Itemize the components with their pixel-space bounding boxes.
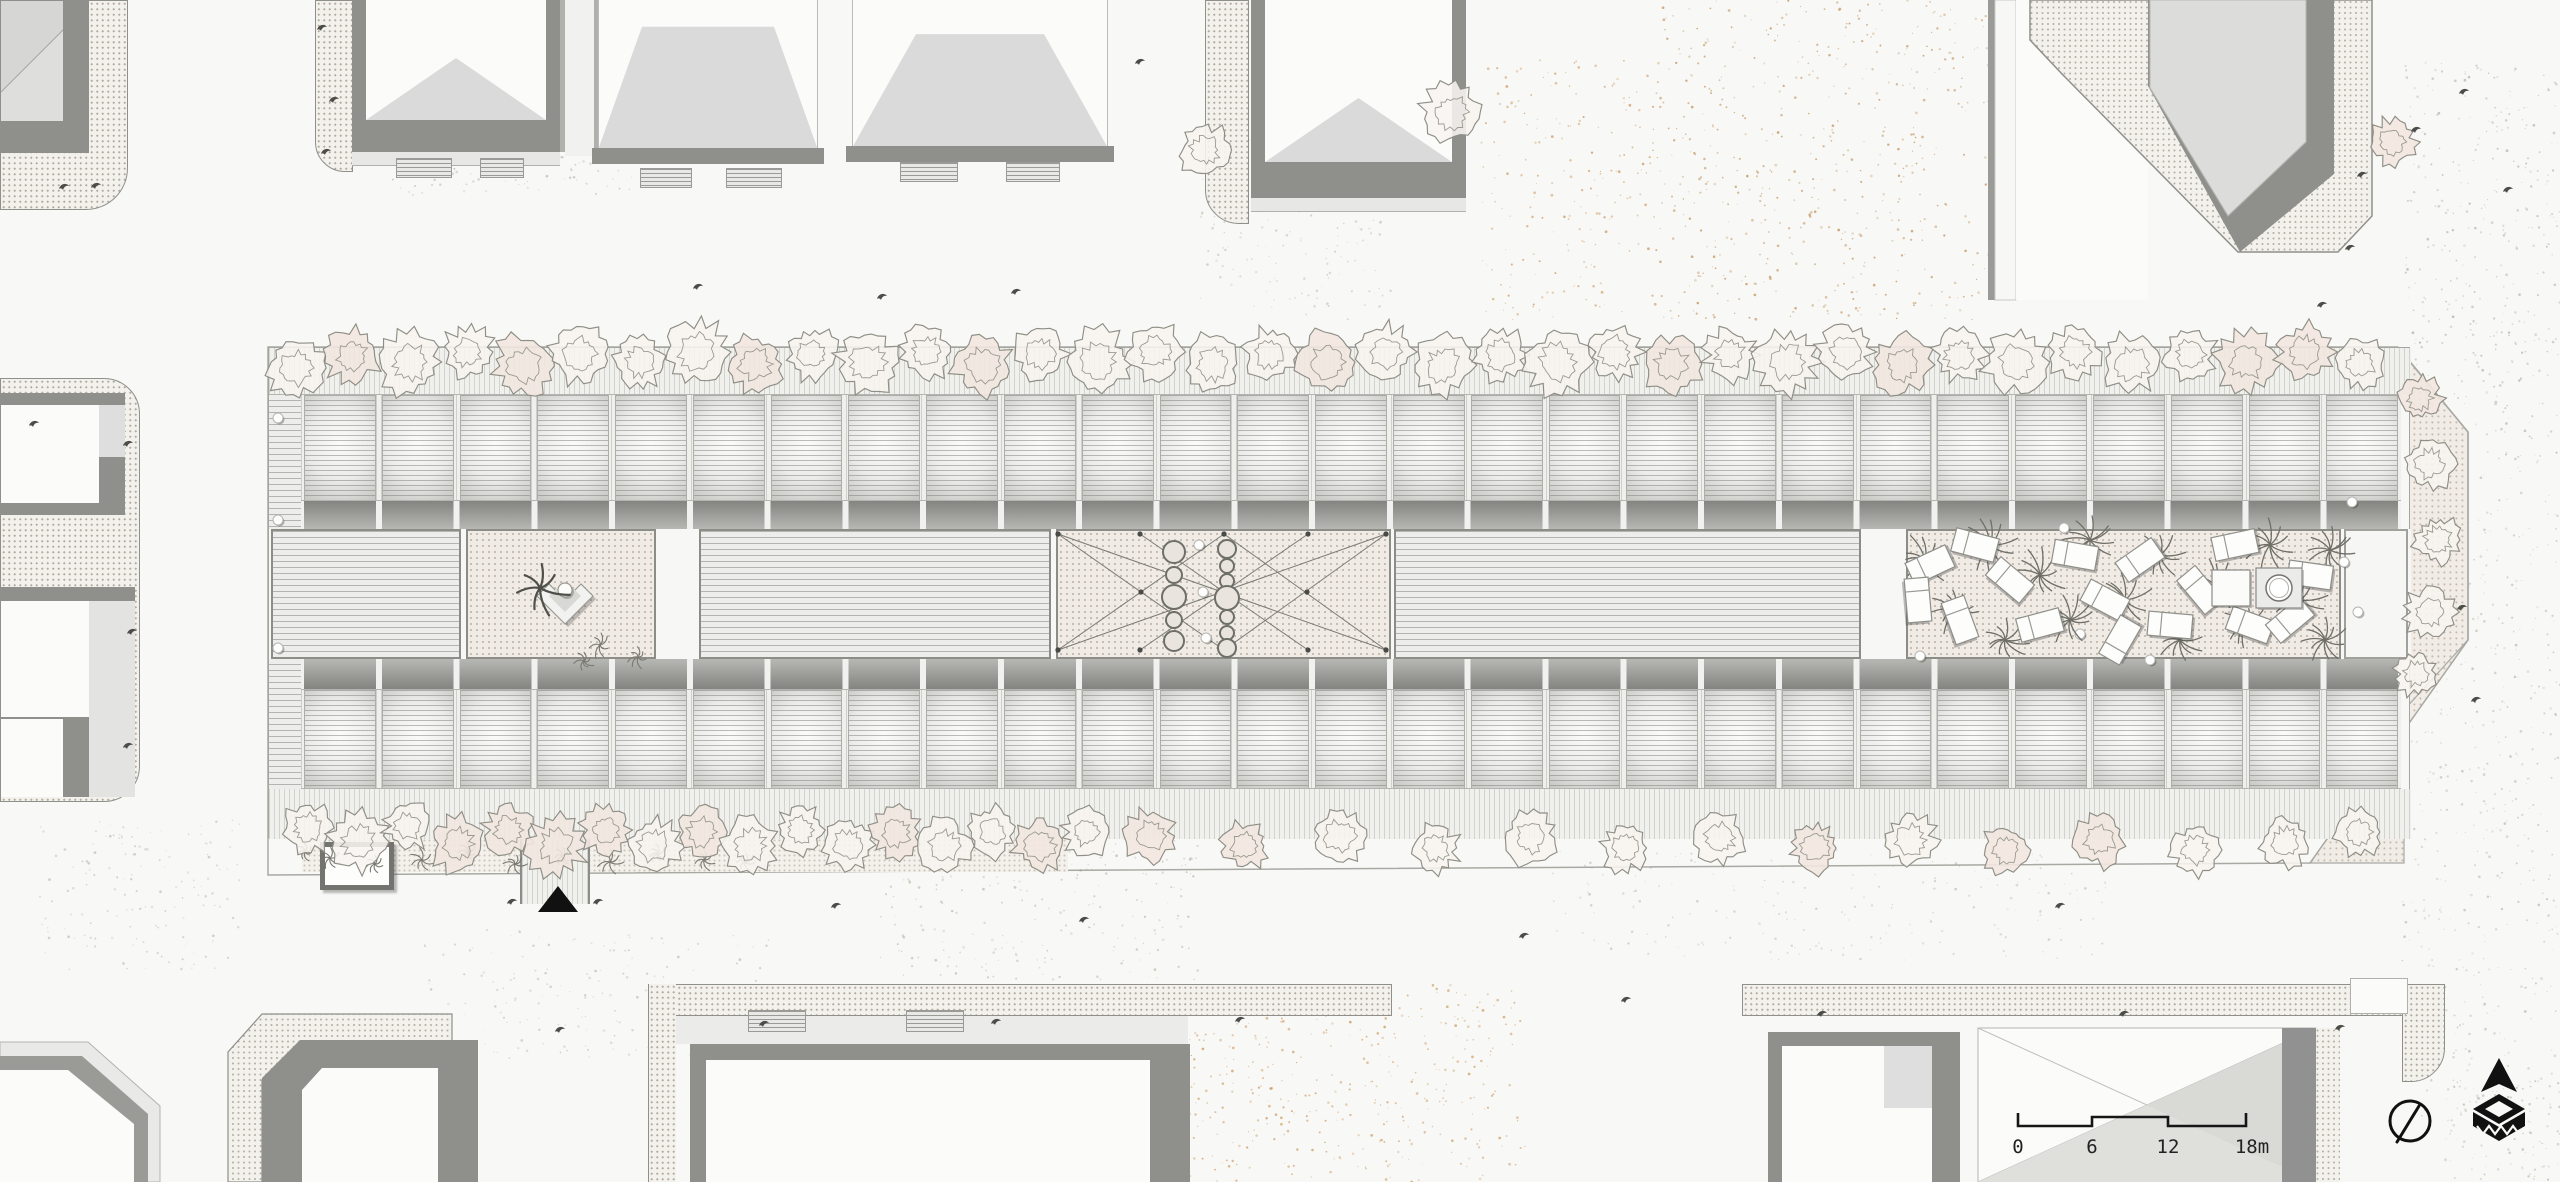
bird-icon — [1621, 997, 1631, 1003]
vault-module — [2015, 395, 2087, 500]
context-building-nw — [0, 0, 128, 210]
vault-module — [1315, 690, 1387, 788]
vault-module — [1471, 395, 1543, 500]
bird-icon — [2503, 187, 2513, 193]
site-plan-canvas: 0 6 12 18m — [0, 0, 2560, 1182]
roof-strip — [89, 601, 135, 797]
bird-icon — [2317, 302, 2327, 308]
vault-module — [304, 395, 376, 500]
vault-module — [537, 690, 609, 788]
vault-module — [1160, 690, 1232, 788]
vault-row-south — [301, 689, 2401, 789]
bird-icon — [555, 1027, 565, 1033]
bird-icon — [877, 294, 887, 300]
vault-module — [848, 395, 920, 500]
bird-icon — [2459, 89, 2469, 95]
bird-icon — [2411, 127, 2421, 133]
bird-icon — [2457, 605, 2467, 611]
stairs — [480, 158, 524, 178]
apron — [1251, 198, 1466, 212]
bird-icon — [1079, 917, 1089, 923]
scalebar-label-12: 12 — [2157, 1136, 2180, 1158]
end-block-east — [2344, 529, 2408, 659]
central-plaza — [1056, 529, 1391, 659]
courtyard-west — [466, 529, 656, 659]
context-building-n3 — [852, 0, 1120, 188]
vault-module — [1937, 395, 2009, 500]
vault-module — [2326, 690, 2398, 788]
stairs — [906, 1010, 964, 1032]
sidewalk-band — [1742, 984, 2404, 1016]
main-building — [268, 347, 2410, 838]
bird-icon — [1135, 59, 1145, 65]
vault-module — [1393, 395, 1465, 500]
publisher-logo-icon — [2473, 1058, 2525, 1141]
vault-module — [2249, 690, 2321, 788]
entrance-corridor — [520, 838, 590, 904]
vault-module — [848, 690, 920, 788]
bird-icon — [2357, 172, 2367, 178]
stairs — [1006, 162, 1060, 182]
flat-roof-block-mid-east — [1394, 529, 1861, 659]
flat-roof-block-west — [271, 529, 461, 659]
stairs — [748, 1010, 806, 1032]
sand-speckles — [1659, 0, 1991, 321]
vault-module — [1393, 690, 1465, 788]
vault-module — [460, 395, 532, 500]
scalebar-label-18m: 18m — [2235, 1136, 2269, 1158]
stairs — [726, 168, 782, 188]
vault-module — [460, 690, 532, 788]
tree — [2405, 440, 2458, 492]
context-building-n4 — [1205, 0, 1467, 228]
vault-module — [2093, 690, 2165, 788]
vault-module — [1004, 690, 1076, 788]
vault-module — [1082, 690, 1154, 788]
vault-module — [1860, 690, 1932, 788]
vault-module — [1860, 395, 1932, 500]
wall-band — [846, 146, 1114, 162]
sidewalk-band — [2402, 984, 2445, 1082]
vault-module — [382, 690, 454, 788]
wall-band — [592, 148, 824, 164]
vault-module — [1626, 690, 1698, 788]
vault-module — [2249, 395, 2321, 500]
context-building-s2 — [648, 978, 1398, 1182]
vault-module — [693, 395, 765, 500]
vault-module — [1549, 395, 1621, 500]
vault-module — [1237, 690, 1309, 788]
courtyard — [1, 719, 63, 797]
courtyard — [706, 1060, 1150, 1182]
eave-band-north — [301, 501, 2401, 529]
vault-module — [304, 690, 376, 788]
stairs — [900, 162, 958, 182]
vault-module — [693, 690, 765, 788]
courtyard — [1, 601, 89, 717]
south-walkway — [269, 789, 2411, 839]
bird-icon — [693, 284, 703, 290]
vault-module — [1704, 690, 1776, 788]
vault-module — [926, 690, 998, 788]
vault-module — [2326, 395, 2398, 500]
vault-module — [771, 690, 843, 788]
context-building-n2 — [598, 0, 830, 190]
vault-module — [1549, 690, 1621, 788]
sidewalk-band — [1205, 0, 1249, 224]
scalebar-label-6: 6 — [2086, 1136, 2097, 1158]
vault-module — [1471, 690, 1543, 788]
tree — [2371, 116, 2421, 168]
scalebar-label-0: 0 — [2012, 1136, 2023, 1158]
sidewalk-band — [648, 984, 676, 1182]
roof-pad — [2350, 978, 2408, 1014]
roof-step — [1884, 1046, 1932, 1108]
bird-icon — [2471, 697, 2481, 703]
vault-module — [771, 395, 843, 500]
bird-icon — [507, 899, 517, 905]
bird-icon — [593, 899, 603, 905]
vault-module — [1315, 395, 1387, 500]
vault-module — [1626, 395, 1698, 500]
context-building-n1 — [315, 0, 560, 192]
bird-icon — [1011, 289, 1021, 295]
vault-module — [1704, 395, 1776, 500]
roof-step — [99, 405, 125, 457]
stairs — [640, 168, 692, 188]
context-building-ne — [1988, 0, 2372, 300]
palm-garden — [1906, 529, 2341, 659]
vault-module — [926, 395, 998, 500]
vault-module — [1082, 395, 1154, 500]
sand-speckles — [2444, 1080, 2560, 1181]
sand-speckles — [1552, 849, 2107, 960]
sand-speckles — [2404, 62, 2560, 479]
sand-speckles — [39, 820, 240, 971]
context-building-s1 — [228, 1014, 478, 1182]
vault-module — [2093, 395, 2165, 500]
flat-roof-block-mid-west — [699, 529, 1051, 659]
vault-module — [1782, 395, 1854, 500]
vault-module — [2171, 395, 2243, 500]
sand-speckles — [1481, 59, 1660, 320]
bird-icon — [831, 903, 841, 909]
vault-row-north — [301, 394, 2401, 501]
eave-band-south — [301, 659, 2401, 689]
vault-module — [537, 395, 609, 500]
vault-module — [615, 395, 687, 500]
vault-module — [1160, 395, 1232, 500]
side-yard — [565, 0, 594, 156]
vault-module — [1004, 395, 1076, 500]
sidewalk-band — [315, 0, 353, 172]
stairs — [396, 158, 452, 178]
tree — [2411, 517, 2461, 567]
bird-icon — [2055, 903, 2065, 909]
kiosk — [320, 842, 394, 890]
planting-strip-south — [302, 838, 1068, 872]
context-building-w — [0, 378, 140, 802]
vault-module — [382, 395, 454, 500]
vault-module — [1937, 690, 2009, 788]
context-building-sw — [0, 1042, 160, 1182]
vault-module — [1782, 690, 1854, 788]
central-spine — [269, 529, 2411, 659]
vault-module — [2015, 690, 2087, 788]
courtyard — [1, 405, 99, 503]
north-walkway — [269, 348, 2411, 394]
vault-module — [2171, 690, 2243, 788]
bird-icon — [1519, 933, 1529, 939]
vault-module — [615, 690, 687, 788]
context-nw-roof — [1, 1, 63, 121]
bird-icon — [2345, 245, 2355, 251]
apron — [352, 152, 560, 166]
vault-module — [1237, 395, 1309, 500]
